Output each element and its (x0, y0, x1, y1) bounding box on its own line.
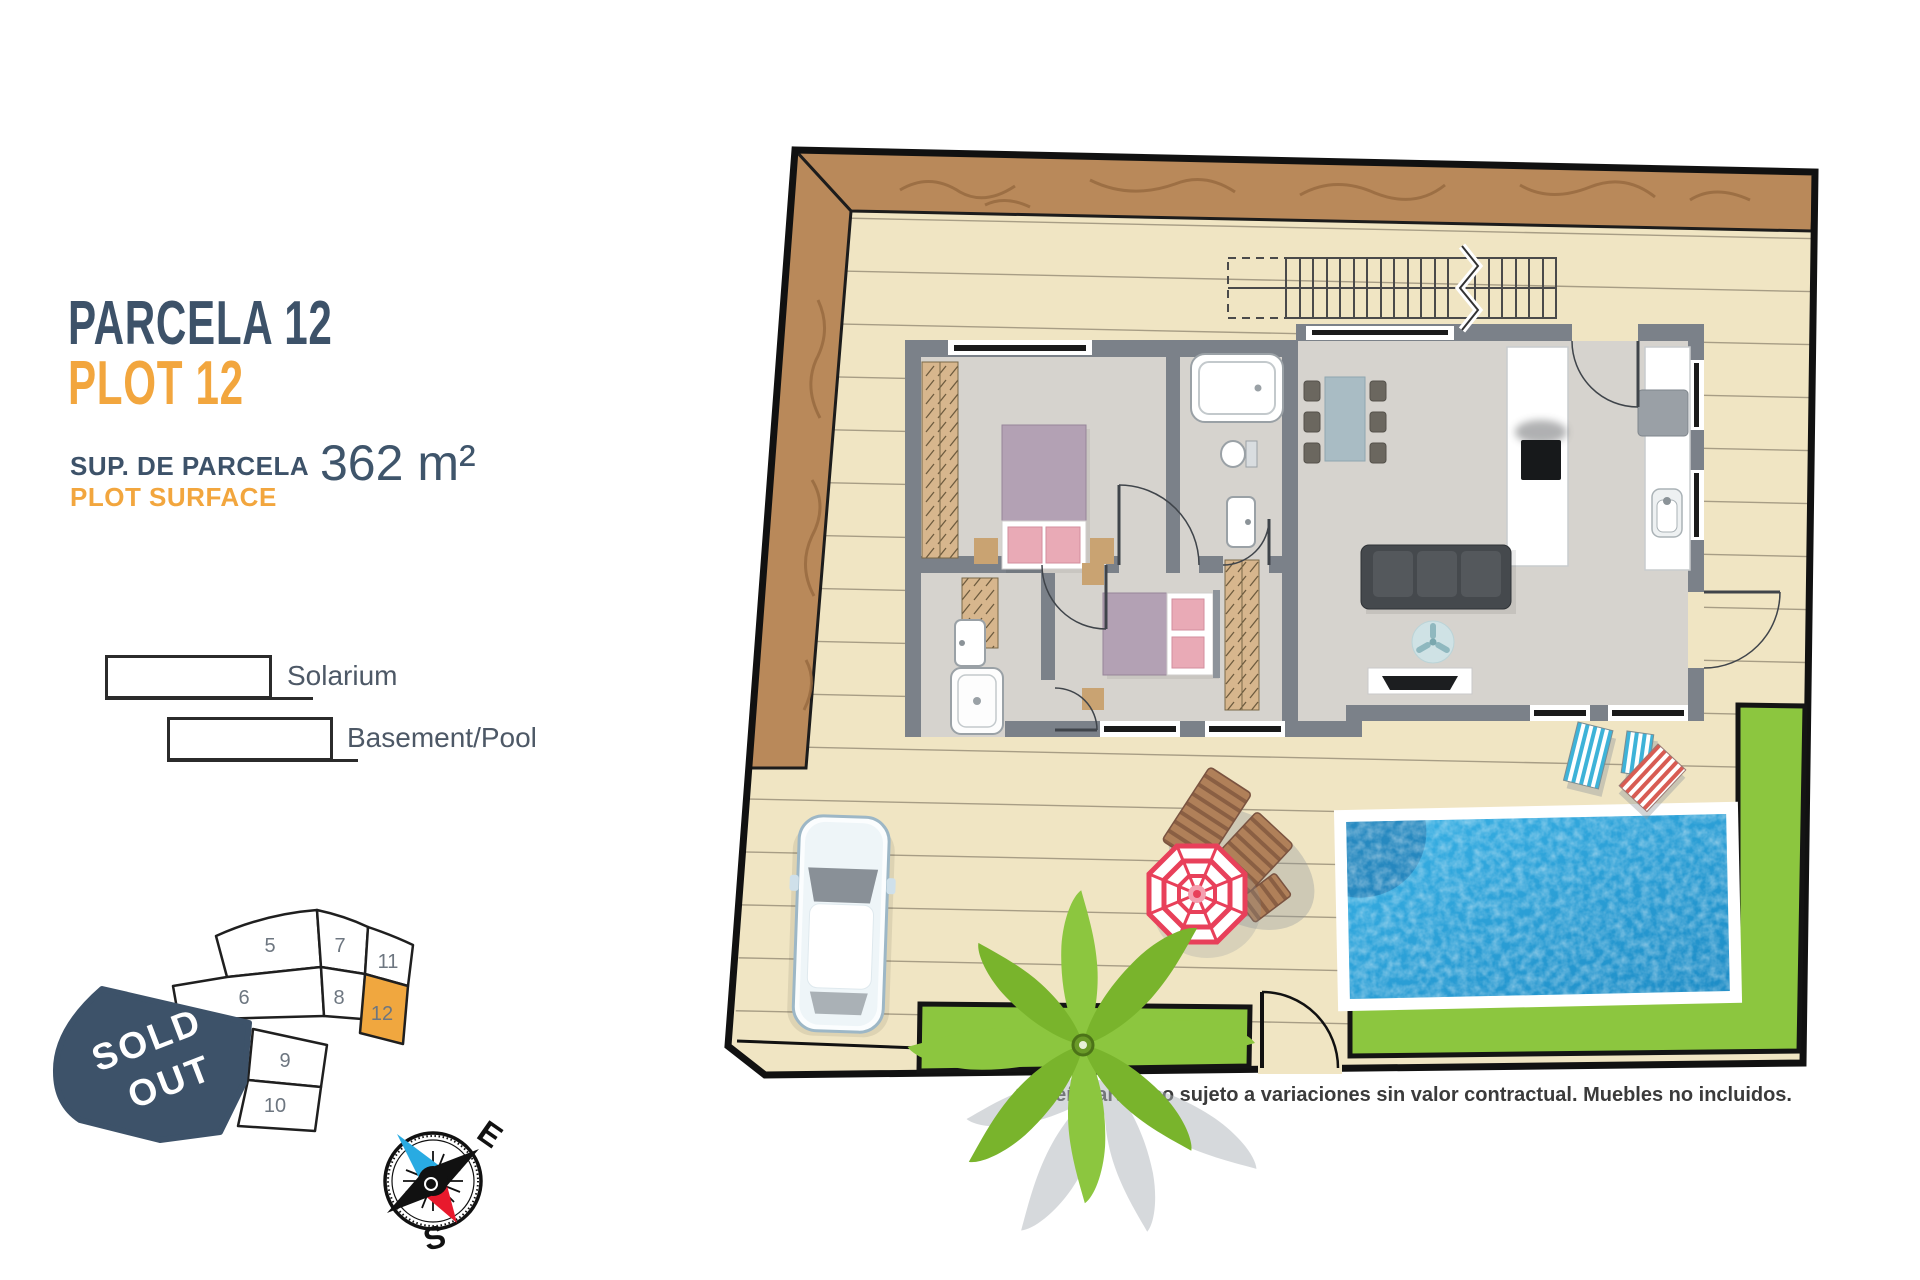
nightstand (1082, 688, 1104, 710)
car-rear-window (809, 991, 868, 1015)
site-plan (0, 0, 1920, 1280)
dining-table (1325, 377, 1365, 461)
car-mirror (886, 878, 896, 894)
house (905, 324, 1780, 737)
toilet (1246, 441, 1257, 467)
dining-set (1304, 377, 1386, 463)
cooktop (1521, 440, 1561, 480)
tv (1382, 676, 1458, 690)
bathtub (1191, 354, 1283, 422)
nightstand (1082, 563, 1104, 585)
fridge (1638, 390, 1688, 436)
car-mirror (789, 875, 799, 891)
nightstand (974, 538, 998, 564)
ceiling-fan (1412, 621, 1454, 663)
car-windshield (807, 867, 878, 903)
stairs (1228, 246, 1556, 330)
car (784, 815, 898, 1039)
nightstand (1090, 538, 1114, 564)
